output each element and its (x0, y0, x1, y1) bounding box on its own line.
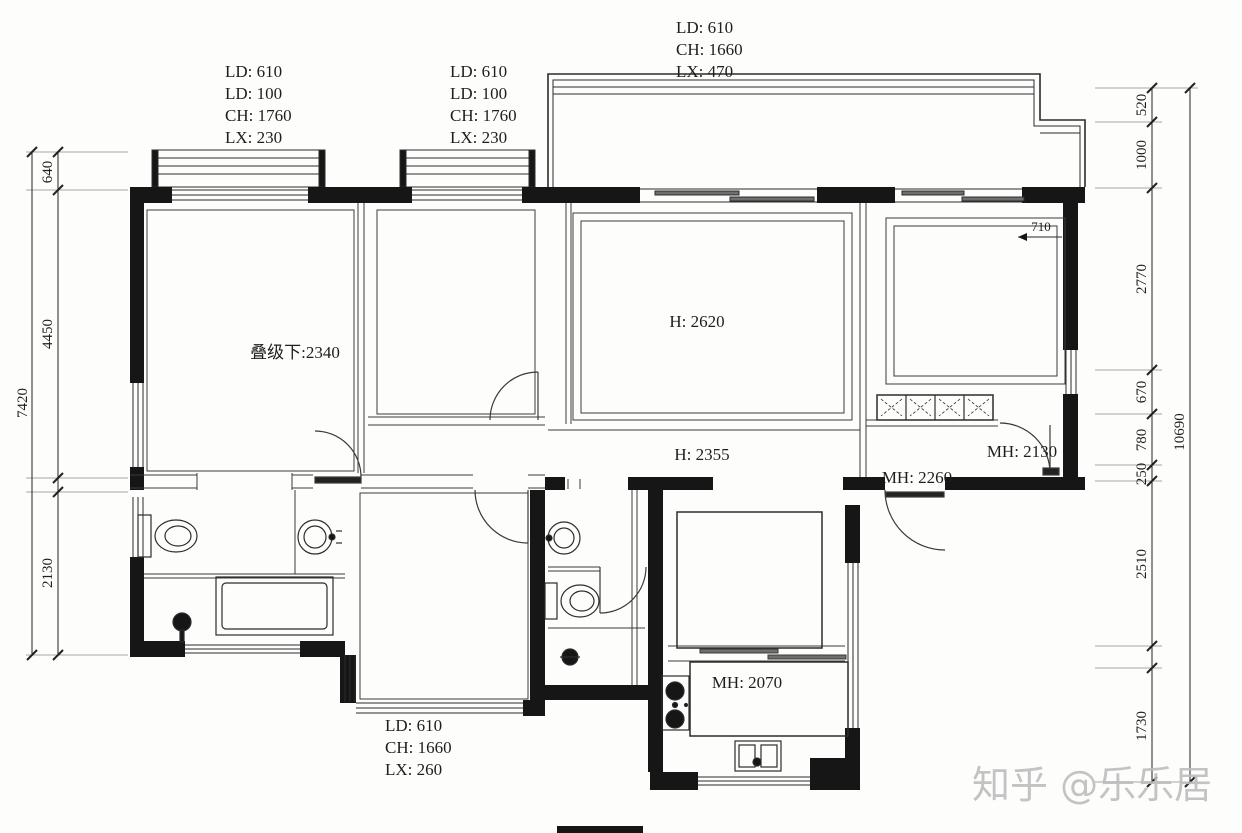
kitchen-counter-label: MH: 2070 (712, 673, 782, 692)
shower-drain-left (173, 613, 191, 631)
win-tl-3: CH: 1760 (225, 106, 292, 125)
win-tl-2: LD: 100 (225, 84, 282, 103)
floor-plan-drawing: 7420 640 4450 2130 520 1000 2770 670 780… (0, 0, 1242, 833)
entry-door-arc (885, 490, 945, 550)
dim-520: 520 (1134, 94, 1150, 117)
win-tr-3: LX: 470 (676, 62, 733, 81)
dim-total-left: 7420 (15, 388, 31, 418)
toilet-left-tank (138, 515, 151, 557)
dimension-text-right: 520 1000 2770 670 780 250 2510 1730 1069… (1134, 94, 1188, 741)
win-tl-4: LX: 230 (225, 128, 282, 147)
watermark: 知乎 @乐乐居 (972, 763, 1212, 807)
sink-left (298, 520, 332, 554)
floor-plan-page: 7420 640 4450 2130 520 1000 2770 670 780… (0, 0, 1242, 833)
toilet-mid-bowl (561, 585, 599, 617)
toilet-mid-tank (545, 583, 557, 619)
dim-2770: 2770 (1134, 264, 1150, 294)
leader-710 (1018, 233, 1062, 241)
offset-710-label: 710 (1031, 219, 1051, 234)
master-ceiling-label: 叠级下:2340 (250, 343, 340, 362)
fixtures (138, 395, 993, 771)
dining-table (677, 512, 822, 648)
dim-1000: 1000 (1134, 140, 1150, 170)
hall-height-label: H: 2355 (674, 445, 729, 464)
entry-door-label: MH: 2260 (882, 468, 952, 487)
bay-window-bed2 (400, 150, 535, 187)
win-tr-1: LD: 610 (676, 18, 733, 37)
bedroom-door-label: MH: 2130 (987, 442, 1057, 461)
dimension-text-left: 7420 640 4450 2130 (15, 161, 56, 588)
living-height-label: H: 2620 (669, 312, 724, 331)
win-tr-2: CH: 1660 (676, 40, 743, 59)
wardrobe (877, 395, 993, 420)
bedroom-door-stop (1043, 468, 1059, 475)
dim-780: 780 (1134, 429, 1150, 452)
bay-window-master (152, 150, 325, 187)
entry-door-leaf (886, 492, 944, 497)
dim-2130: 2130 (40, 558, 56, 588)
dim-250: 250 (1134, 463, 1150, 486)
dim-4450: 4450 (40, 319, 56, 349)
win-tl-1: LD: 610 (225, 62, 282, 81)
win-b-3: LX: 260 (385, 760, 442, 779)
bed2-door-arc (490, 372, 538, 420)
win-tm-1: LD: 610 (450, 62, 507, 81)
leader-arrow (1018, 233, 1027, 241)
win-b-2: CH: 1660 (385, 738, 452, 757)
master-door-leaf (315, 477, 361, 483)
bath-door-arc (600, 567, 646, 613)
dim-640: 640 (40, 161, 56, 184)
room3-door-arc (475, 490, 528, 543)
bathtub (216, 577, 333, 635)
dim-2510: 2510 (1134, 549, 1150, 579)
win-tm-2: LD: 100 (450, 84, 507, 103)
sink-mid (548, 522, 580, 554)
dim-total-right: 10690 (1172, 413, 1188, 451)
balcony-outline (548, 74, 1085, 187)
win-b-1: LD: 610 (385, 716, 442, 735)
win-tm-4: LX: 230 (450, 128, 507, 147)
dim-670: 670 (1134, 381, 1150, 404)
walls (130, 187, 1085, 833)
dim-1730: 1730 (1134, 711, 1150, 741)
win-tm-3: CH: 1760 (450, 106, 517, 125)
interior-walls (130, 203, 1065, 699)
